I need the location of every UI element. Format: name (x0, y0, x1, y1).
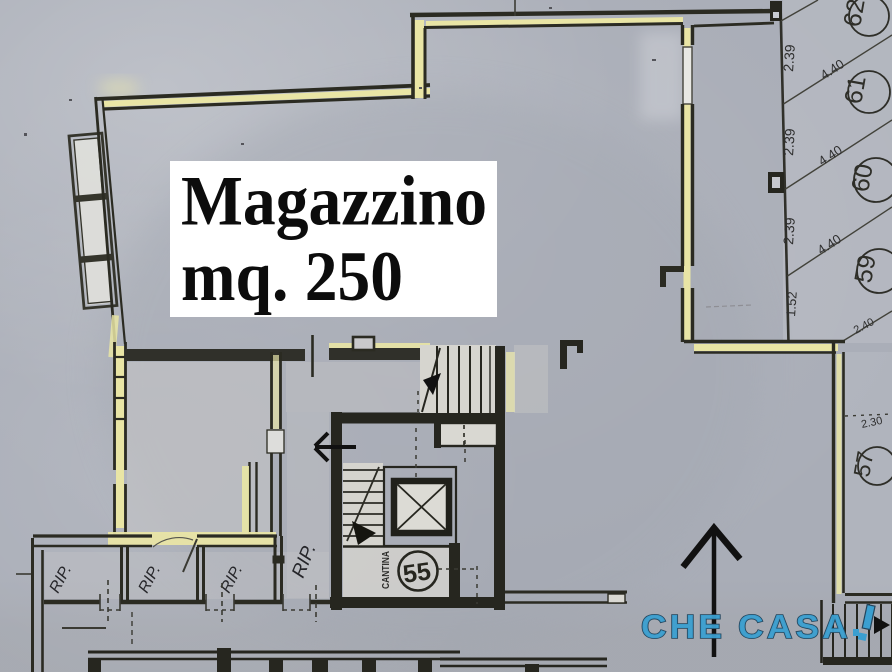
svg-text:CHE CASA: CHE CASA (641, 608, 851, 645)
svg-text:61: 61 (839, 74, 871, 106)
svg-text:2.39: 2.39 (780, 44, 798, 73)
svg-text:mq. 250: mq. 250 (181, 238, 403, 316)
svg-text:60: 60 (846, 162, 878, 194)
svg-text:57: 57 (848, 449, 878, 479)
svg-text:1.52: 1.52 (783, 291, 800, 317)
svg-text:62: 62 (838, 0, 870, 29)
svg-text:2.39: 2.39 (780, 217, 798, 246)
svg-text:Magazzino: Magazzino (181, 163, 487, 241)
svg-text:59: 59 (849, 253, 881, 285)
svg-text:CANTINA: CANTINA (380, 551, 392, 589)
svg-text:2.39: 2.39 (780, 128, 798, 157)
svg-text:55: 55 (401, 557, 433, 589)
